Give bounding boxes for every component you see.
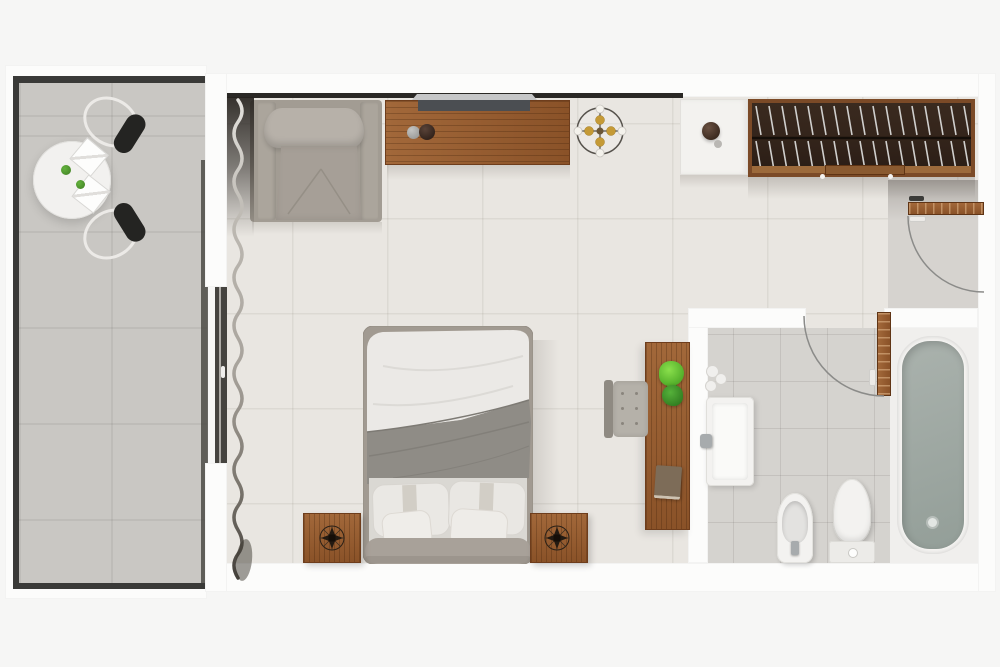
desk-chair-back <box>604 380 613 438</box>
nightstand-left <box>303 513 361 563</box>
bathtub-drain <box>926 516 939 529</box>
bottom-wall <box>205 563 996 592</box>
curtain <box>227 97 254 237</box>
tuft-button <box>621 422 624 425</box>
bathtub <box>897 336 969 554</box>
sink-faucet-icon <box>700 434 712 448</box>
towel-roll <box>705 380 717 392</box>
minibar-bowl <box>702 122 720 140</box>
bidet <box>777 493 813 563</box>
tuft-button <box>635 392 638 395</box>
armchair-seat <box>276 146 362 220</box>
wardrobe-knob <box>820 174 825 179</box>
console-shadow <box>387 165 570 180</box>
bidet-faucet-icon <box>791 541 799 555</box>
bathroom-wall-top-right <box>884 308 978 328</box>
table-greenery <box>61 165 71 175</box>
nightstand-right <box>530 513 588 563</box>
towel-rolls <box>700 362 730 394</box>
wardrobe-knob <box>888 174 893 179</box>
desk-book <box>654 465 682 500</box>
window-handle <box>221 366 225 378</box>
minibar-shadow <box>680 175 748 188</box>
desk-chair <box>604 380 648 438</box>
bathtub-water <box>902 341 964 549</box>
desk-chair-seat <box>613 381 648 437</box>
left-wall-upper <box>205 73 227 287</box>
armchair-shadow <box>252 222 382 234</box>
tuft-button <box>635 422 638 425</box>
desk-plant-dark <box>662 385 683 406</box>
armchair-arm-right <box>360 102 378 220</box>
entry-door-latch <box>909 216 926 222</box>
toilet-flush-button <box>848 548 858 558</box>
table-greenery <box>76 180 85 189</box>
tv <box>418 100 530 111</box>
bidet-bowl <box>782 501 808 543</box>
bathroom-door-handle <box>869 369 876 386</box>
sliding-window <box>215 287 227 463</box>
minibar-small-item <box>714 140 722 148</box>
bathroom-wall-top-left <box>688 308 806 328</box>
wardrobe-shadow <box>748 177 975 199</box>
wardrobe-shelf-plank <box>825 165 905 175</box>
floorplan-canvas <box>0 0 1000 667</box>
room-entry <box>888 180 978 308</box>
left-wall-lower <box>205 463 227 592</box>
lounge-armchair <box>250 100 382 222</box>
towel-roll <box>715 373 727 385</box>
tuft-button <box>621 407 624 410</box>
toilet-lid <box>833 479 871 543</box>
right-wall <box>978 73 996 592</box>
console-decor-bowl <box>419 124 435 140</box>
sink-vanity <box>706 397 754 486</box>
entry-door <box>908 202 984 215</box>
bed-graphic <box>363 326 533 564</box>
wardrobe <box>748 99 975 177</box>
tuft-button <box>621 392 624 395</box>
sink-basin <box>712 403 748 480</box>
wardrobe-hangers <box>752 103 971 173</box>
tuft-button <box>635 407 638 410</box>
toilet <box>829 479 875 563</box>
entry-door-handle <box>909 196 924 201</box>
armchair-back-cushion <box>264 108 364 148</box>
double-bed <box>363 326 533 564</box>
bathroom-door <box>877 312 891 396</box>
